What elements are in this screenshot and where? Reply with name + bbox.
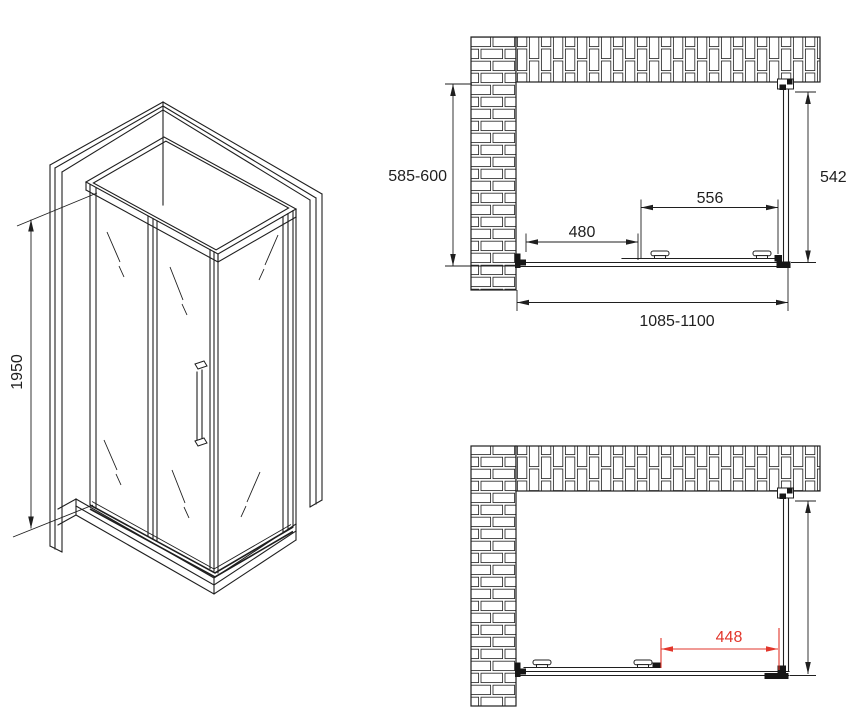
dimension-side-unlabeled — [790, 501, 816, 676]
roller — [634, 660, 652, 668]
fixed-panel-dimension-label: 480 — [569, 224, 596, 241]
side-glass-panel — [784, 85, 789, 262]
drawing-page: 1950 — [0, 0, 866, 712]
brick-wall-vertical — [471, 446, 516, 706]
door-width-dimension-label: 556 — [697, 190, 724, 207]
roller — [651, 251, 669, 259]
shower-tray — [58, 499, 296, 594]
side-glass-panel — [784, 494, 789, 671]
plan-view-closed: 585-600 542 556 480 — [388, 37, 847, 330]
height-dimension-label: 1950 — [9, 354, 26, 390]
side-panel-dimension-label: 542 — [820, 169, 847, 186]
depth-dimension-label: 585-600 — [388, 168, 447, 185]
opening-dimension-label: 448 — [716, 629, 743, 646]
dimension-height: 1950 — [9, 193, 97, 537]
roller — [533, 660, 551, 668]
technical-drawing-canvas: 1950 — [0, 0, 866, 712]
glass-shine-marks — [104, 232, 278, 518]
wall-mount-bracket — [778, 79, 794, 90]
dimension-opening: 448 — [661, 628, 779, 670]
dimension-overall-width: 1085-1100 — [517, 268, 788, 330]
wall-mount-bracket — [778, 488, 794, 499]
dimension-side-panel: 542 — [791, 92, 847, 263]
door-track — [515, 660, 789, 679]
dimension-door-width: 556 — [641, 190, 778, 258]
dimension-fixed-panel: 480 — [526, 224, 638, 260]
room-walls — [50, 102, 322, 552]
isometric-view: 1950 — [9, 102, 322, 594]
shower-enclosure-frame — [86, 137, 296, 573]
brick-wall-horizontal — [516, 446, 820, 491]
roller — [753, 251, 771, 259]
door-handle — [195, 361, 207, 446]
brick-wall-horizontal — [516, 37, 820, 82]
door-track — [515, 251, 791, 268]
plan-view-open: 448 — [471, 446, 820, 706]
overall-width-dimension-label: 1085-1100 — [639, 313, 714, 330]
brick-wall-vertical — [471, 37, 516, 290]
